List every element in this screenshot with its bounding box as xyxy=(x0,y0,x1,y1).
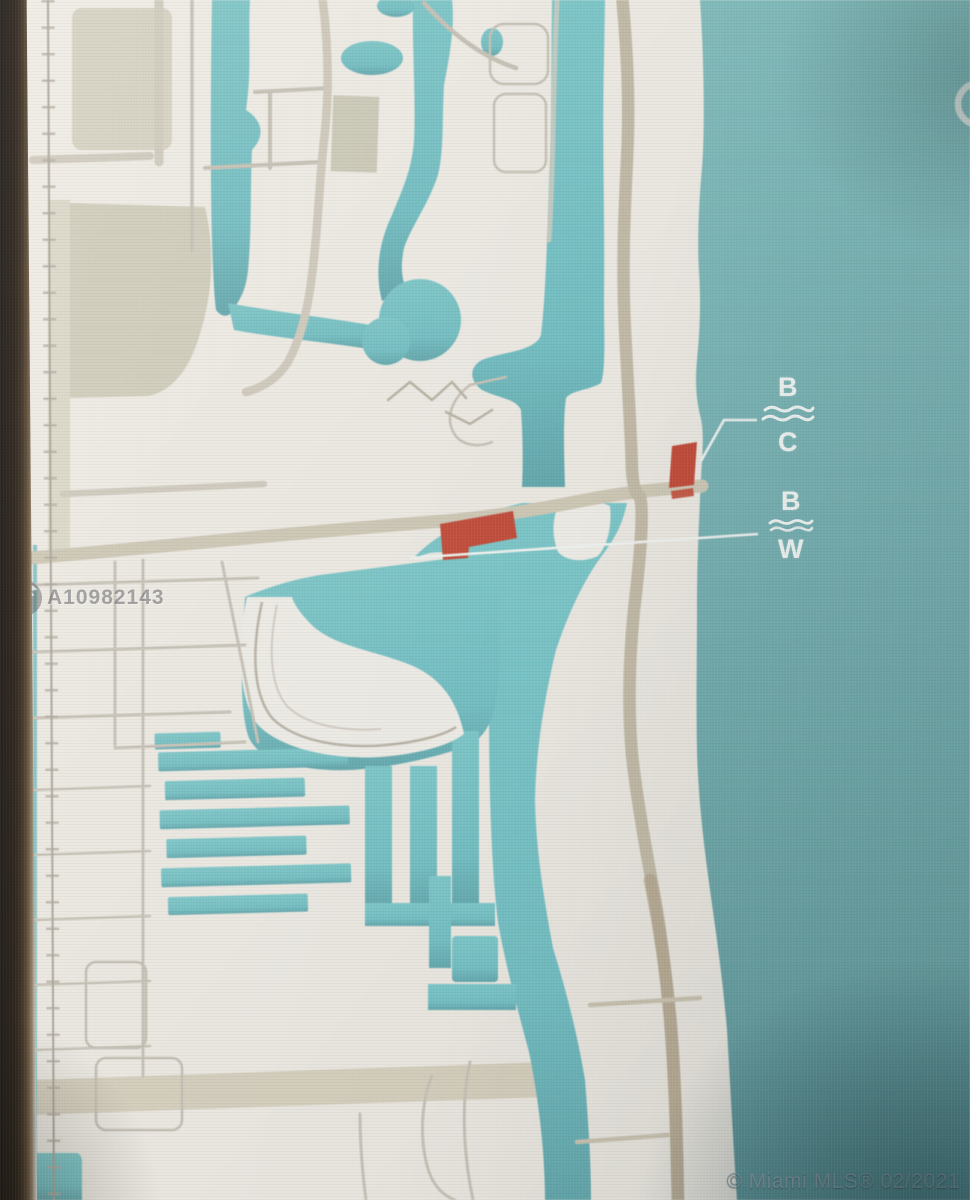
marker-island xyxy=(669,442,697,488)
watermark-listing-id: A10982143 xyxy=(47,586,165,610)
photographed-screen: B C B W A10982143 © Miami MLS® 02/2021 xyxy=(0,0,970,1200)
label-bw-bottom-letter: W xyxy=(778,536,804,563)
map-label-bw: B W xyxy=(760,488,822,563)
map-label-bc: B C xyxy=(756,374,820,456)
mls-copyright: © Miami MLS® 02/2021 xyxy=(726,1170,960,1194)
ocean xyxy=(696,0,970,1200)
double-wave-icon xyxy=(768,518,814,533)
label-bc-top-letter: B xyxy=(778,374,798,401)
double-wave-icon xyxy=(761,404,815,426)
label-bc-bottom-letter: C xyxy=(778,429,798,456)
label-bw-top-letter: B xyxy=(781,488,801,515)
